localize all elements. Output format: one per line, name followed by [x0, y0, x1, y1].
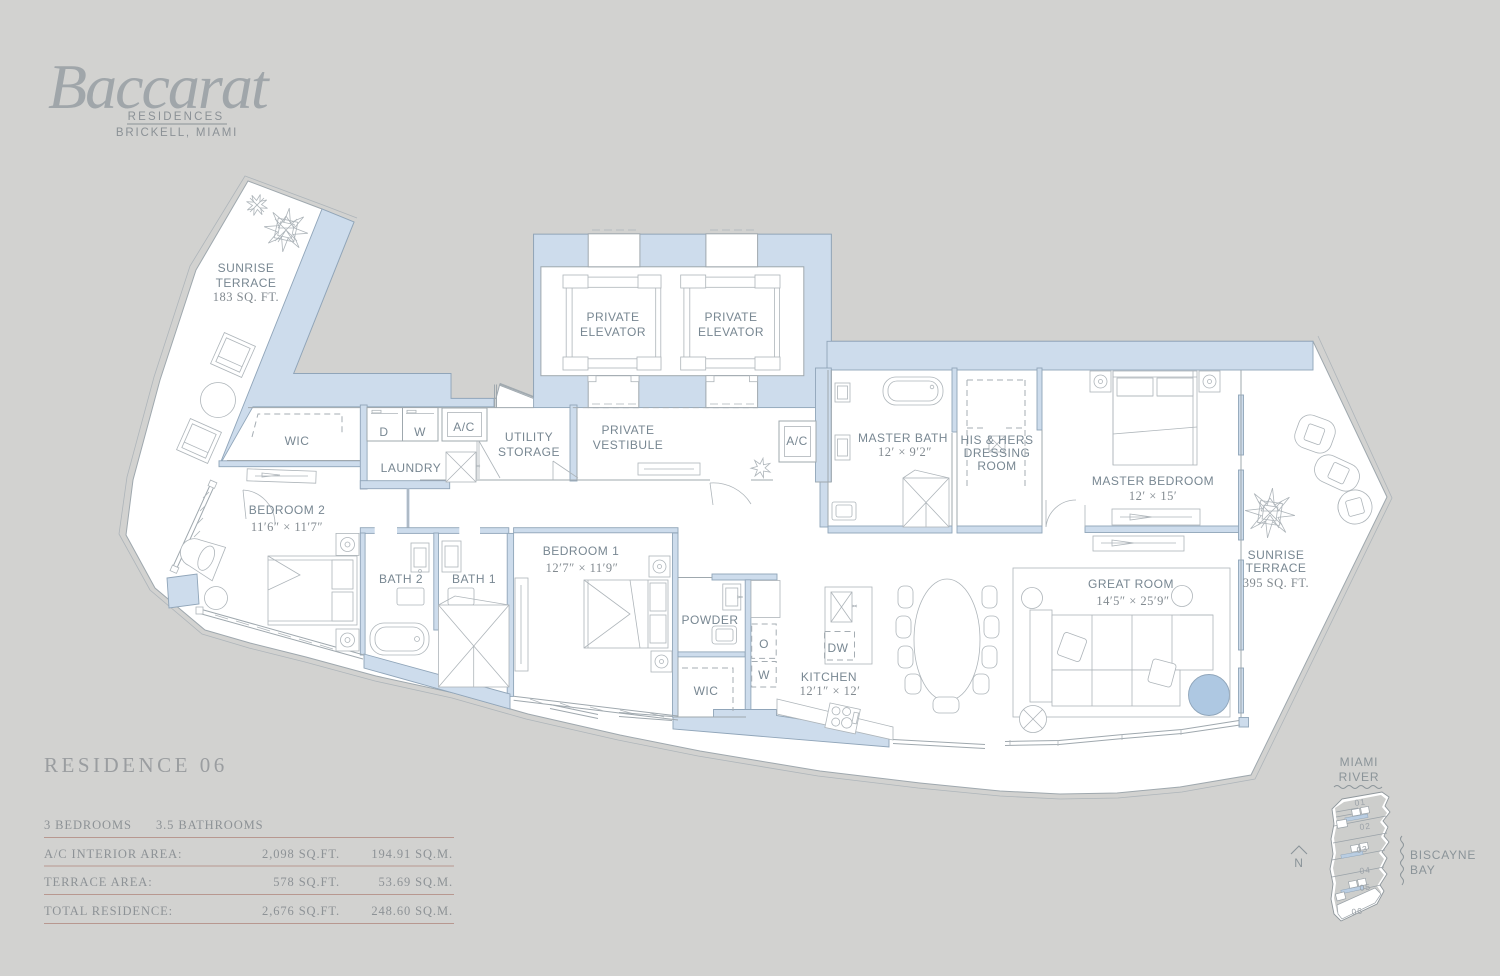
svg-text:WIC: WIC	[694, 684, 719, 698]
svg-text:O: O	[759, 637, 769, 651]
svg-text:ELEVATOR: ELEVATOR	[580, 325, 646, 339]
svg-text:03: 03	[1356, 843, 1369, 854]
svg-text:PRIVATE: PRIVATE	[586, 310, 639, 324]
svg-text:MASTER BATH: MASTER BATH	[858, 431, 948, 445]
svg-text:2,676 SQ.FT.: 2,676 SQ.FT.	[262, 904, 340, 918]
svg-text:MIAMI: MIAMI	[1340, 755, 1379, 769]
svg-text:12′7″ × 11′9″: 12′7″ × 11′9″	[546, 561, 619, 575]
svg-text:ELEVATOR: ELEVATOR	[698, 325, 764, 339]
svg-text:395 SQ. FT.: 395 SQ. FT.	[1243, 576, 1309, 590]
svg-text:HIS & HERS: HIS & HERS	[960, 433, 1033, 447]
svg-text:BISCAYNE: BISCAYNE	[1410, 848, 1476, 862]
svg-text:183 SQ. FT.: 183 SQ. FT.	[213, 290, 279, 304]
svg-text:SUNRISE: SUNRISE	[218, 261, 275, 275]
svg-text:TOTAL RESIDENCE:: TOTAL RESIDENCE:	[44, 904, 173, 918]
svg-text:PRIVATE: PRIVATE	[601, 423, 654, 437]
svg-text:STORAGE: STORAGE	[498, 445, 560, 459]
svg-text:RESIDENCES: RESIDENCES	[128, 111, 225, 123]
svg-text:TERRACE AREA:: TERRACE AREA:	[44, 875, 153, 889]
svg-text:12′ × 9′2″: 12′ × 9′2″	[878, 445, 932, 459]
svg-text:DRESSING: DRESSING	[964, 446, 1031, 460]
svg-text:ROOM: ROOM	[977, 459, 1016, 473]
svg-text:W: W	[758, 668, 770, 682]
svg-text:11′6″ × 11′7″: 11′6″ × 11′7″	[251, 520, 323, 534]
svg-text:TERRACE: TERRACE	[1246, 561, 1307, 575]
svg-text:GREAT ROOM: GREAT ROOM	[1088, 577, 1174, 591]
svg-text:SUNRISE: SUNRISE	[1248, 548, 1305, 562]
svg-text:LAUNDRY: LAUNDRY	[381, 461, 442, 475]
svg-text:53.69 SQ.M.: 53.69 SQ.M.	[379, 875, 454, 889]
svg-text:BEDROOM 1: BEDROOM 1	[543, 544, 620, 558]
svg-text:3 BEDROOMS 3.5 BATHROOMS: 3 BEDROOMS 3.5 BATHROOMS	[44, 818, 264, 832]
svg-text:194.91 SQ.M.: 194.91 SQ.M.	[371, 847, 453, 861]
svg-text:06: 06	[1351, 905, 1364, 916]
svg-text:PRIVATE: PRIVATE	[704, 310, 757, 324]
svg-text:BATH 1: BATH 1	[452, 572, 496, 586]
svg-text:04: 04	[1359, 864, 1372, 875]
svg-text:BRICKELL, MIAMI: BRICKELL, MIAMI	[116, 127, 238, 139]
svg-text:248.60 SQ.M.: 248.60 SQ.M.	[371, 904, 453, 918]
svg-text:02: 02	[1359, 820, 1372, 831]
svg-text:TERRACE: TERRACE	[216, 276, 277, 290]
svg-text:POWDER: POWDER	[682, 613, 739, 627]
svg-text:VESTIBULE: VESTIBULE	[593, 438, 664, 452]
svg-text:DW: DW	[828, 641, 849, 655]
svg-text:A/C: A/C	[453, 420, 475, 434]
svg-text:RESIDENCE 06: RESIDENCE 06	[44, 753, 228, 777]
svg-text:BAY: BAY	[1410, 863, 1436, 877]
svg-text:12′ × 15′: 12′ × 15′	[1129, 489, 1177, 503]
svg-text:05: 05	[1359, 881, 1372, 892]
svg-text:578 SQ.FT.: 578 SQ.FT.	[273, 875, 340, 889]
svg-text:01: 01	[1354, 796, 1367, 807]
svg-text:D: D	[379, 425, 388, 439]
svg-text:MASTER BEDROOM: MASTER BEDROOM	[1092, 474, 1214, 488]
svg-text:KITCHEN: KITCHEN	[801, 670, 857, 684]
svg-text:2,098 SQ.FT.: 2,098 SQ.FT.	[262, 847, 340, 861]
svg-text:12′1″ × 12′: 12′1″ × 12′	[800, 684, 861, 698]
svg-text:RIVER: RIVER	[1339, 770, 1380, 784]
svg-text:14′5″ × 25′9″: 14′5″ × 25′9″	[1096, 594, 1169, 608]
svg-text:BEDROOM 2: BEDROOM 2	[249, 503, 326, 517]
svg-text:W: W	[414, 425, 426, 439]
svg-text:UTILITY: UTILITY	[505, 430, 553, 444]
svg-text:A/C: A/C	[786, 434, 808, 448]
svg-text:A/C INTERIOR AREA:: A/C INTERIOR AREA:	[44, 847, 182, 861]
svg-text:WIC: WIC	[285, 434, 310, 448]
svg-text:BATH 2: BATH 2	[379, 572, 423, 586]
svg-text:N: N	[1294, 856, 1303, 870]
